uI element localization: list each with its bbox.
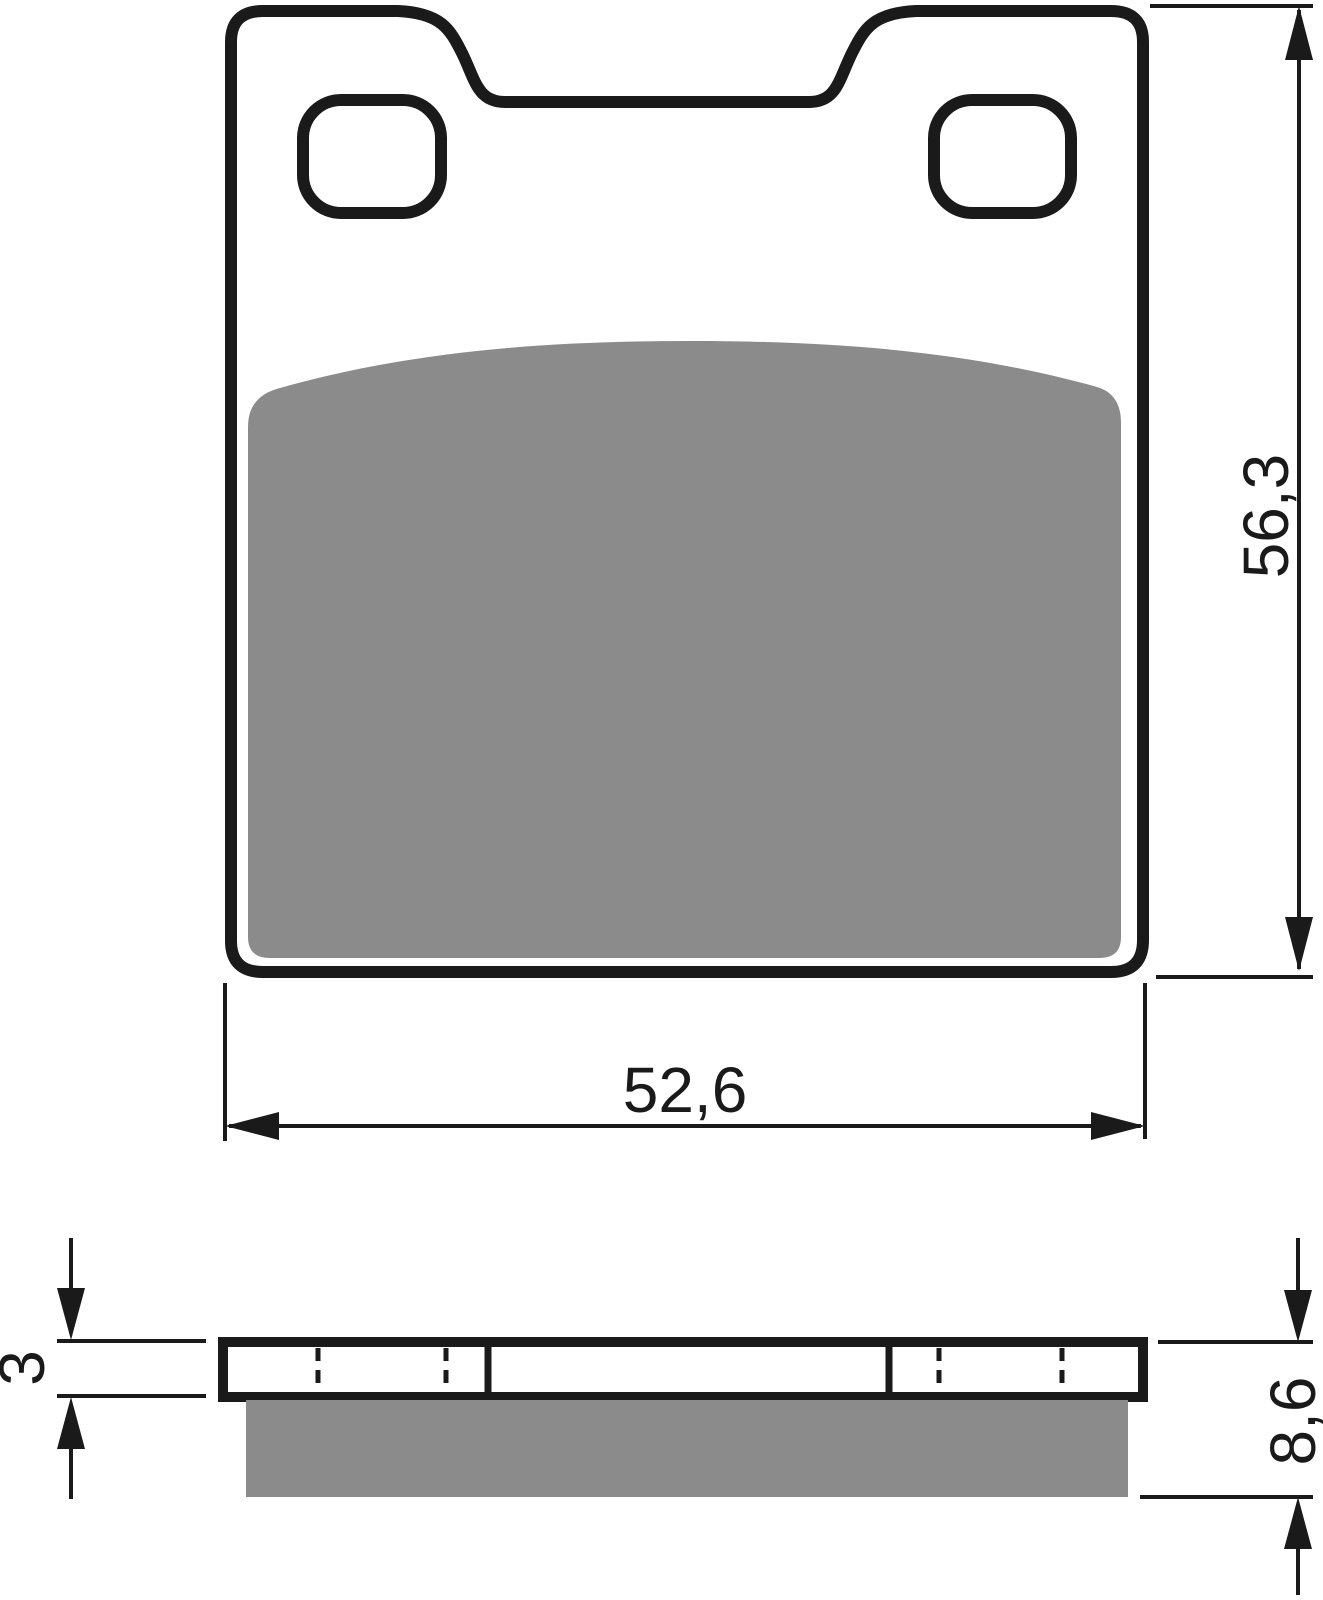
total-arrow-up-icon xyxy=(1284,1497,1312,1549)
technical-drawing-page: 56,3 52,6 3 xyxy=(0,0,1323,1600)
plate-arrow-up-icon xyxy=(57,1397,85,1449)
width-dimension-label: 52,6 xyxy=(623,1054,748,1126)
total-arrow-down-icon xyxy=(1284,1290,1312,1342)
top-view xyxy=(231,11,1143,972)
brake-pad-technical-drawing: 56,3 52,6 3 xyxy=(0,0,1323,1600)
dimension-total-thickness: 8,6 xyxy=(1140,1238,1323,1595)
plate-thickness-label: 3 xyxy=(0,1350,58,1386)
dimension-width: 52,6 xyxy=(225,983,1145,1141)
total-thickness-label: 8,6 xyxy=(1257,1377,1323,1466)
friction-material-top-view xyxy=(248,341,1121,958)
backing-plate-side-view xyxy=(223,1342,1143,1397)
side-view xyxy=(223,1342,1143,1497)
dimension-plate-thickness: 3 xyxy=(0,1238,206,1499)
dimension-height: 56,3 xyxy=(1150,6,1313,977)
mounting-hole-left xyxy=(303,100,441,213)
plate-arrow-down-icon xyxy=(57,1288,85,1340)
friction-material-side-view xyxy=(246,1400,1128,1497)
mounting-hole-right xyxy=(934,100,1071,213)
width-arrow-left-icon xyxy=(225,1112,279,1140)
height-arrow-down-icon xyxy=(1285,917,1313,971)
height-arrow-up-icon xyxy=(1285,6,1313,60)
height-dimension-label: 56,3 xyxy=(1230,454,1302,579)
width-arrow-right-icon xyxy=(1091,1112,1145,1140)
